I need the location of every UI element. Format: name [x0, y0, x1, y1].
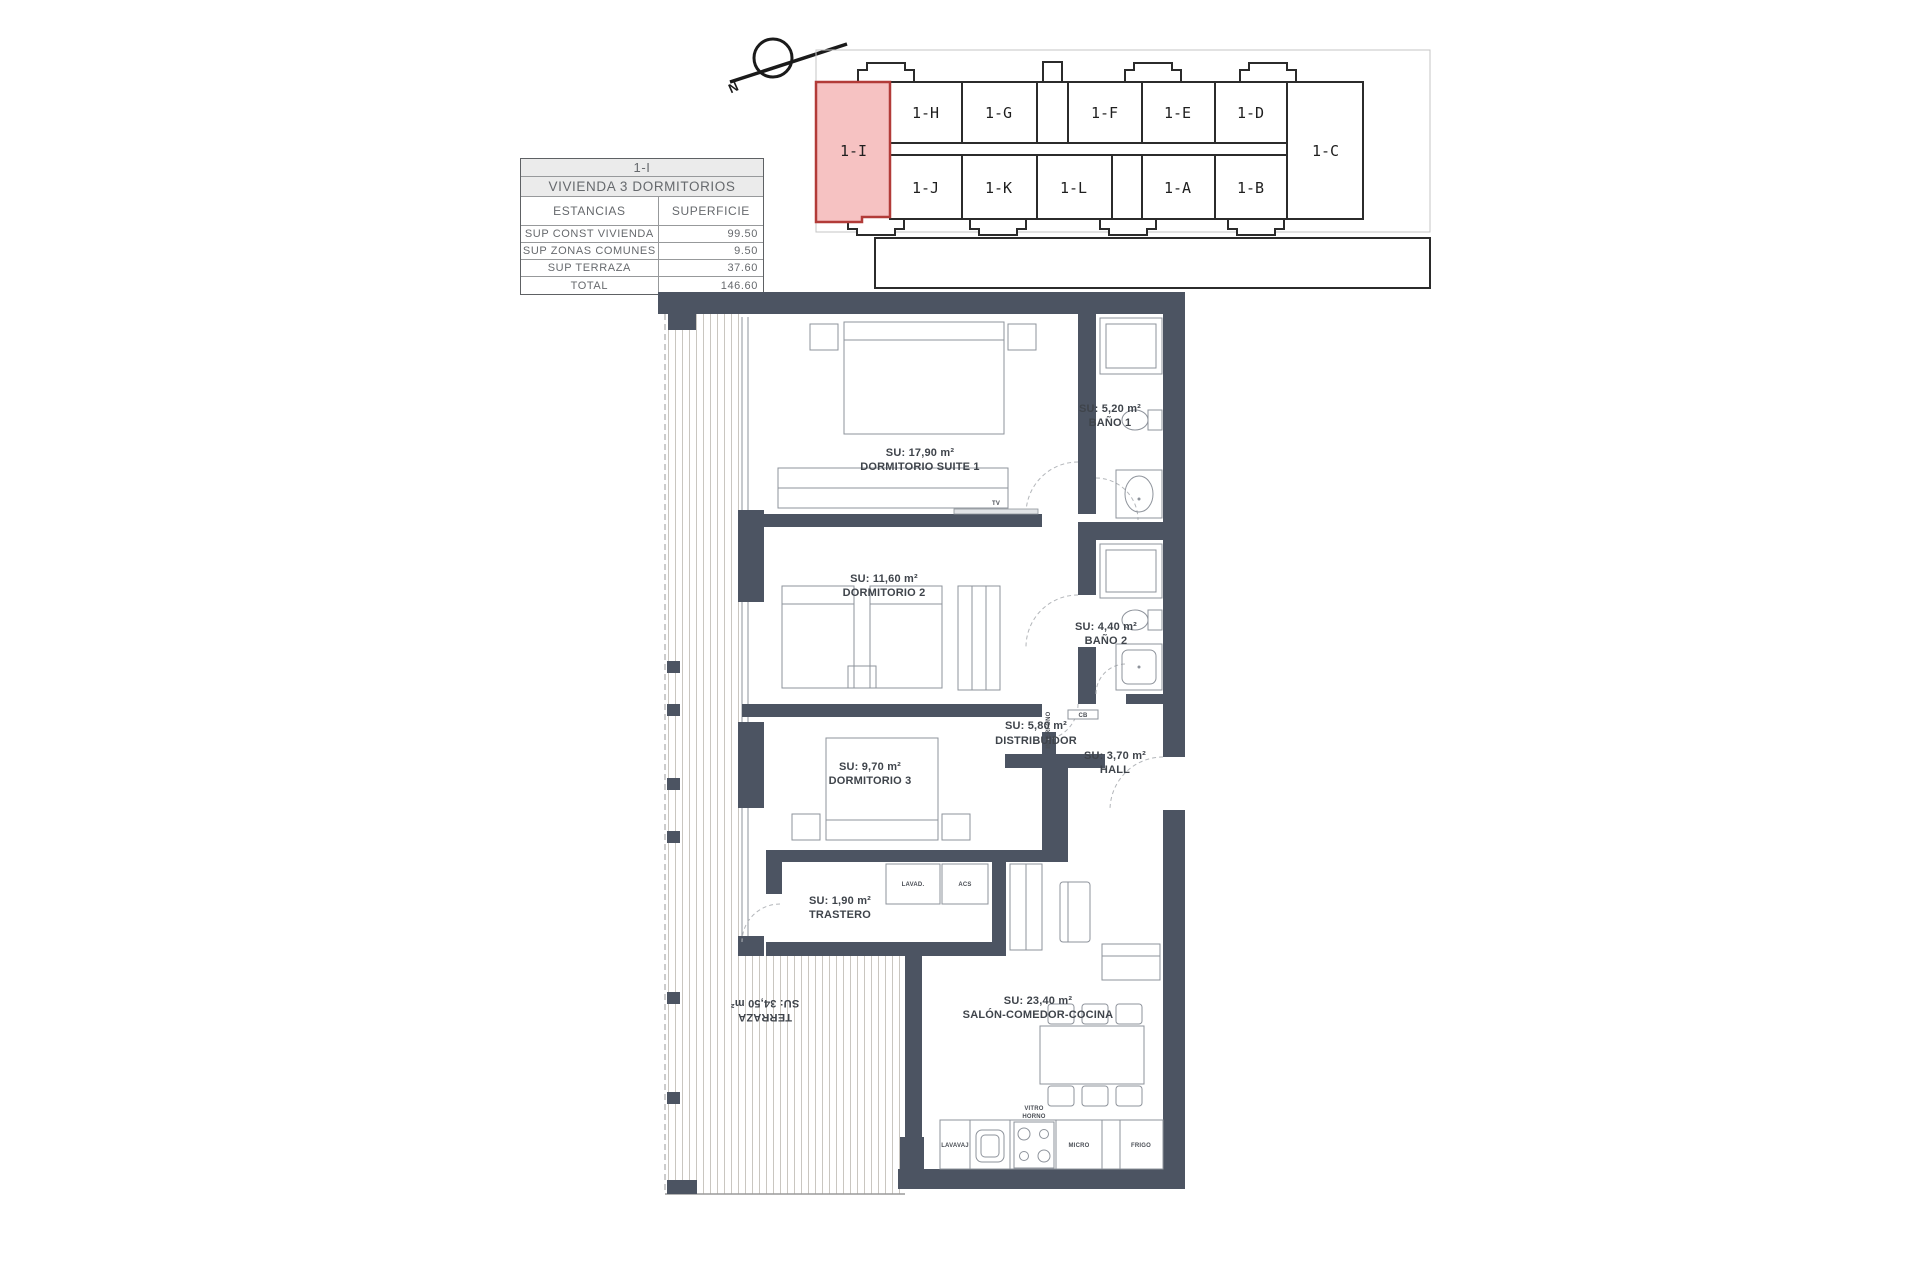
- dining-table: [1040, 1026, 1144, 1084]
- nightstand: [1008, 324, 1036, 350]
- key-plan-unit-label: 1-C: [1312, 142, 1339, 160]
- nightstand: [942, 814, 970, 840]
- chair: [1082, 1086, 1108, 1106]
- key-plan-unit-label: 1-H: [912, 104, 939, 122]
- row-value: 9.50: [658, 243, 763, 259]
- key-plan-unit-label: 1-D: [1237, 104, 1264, 122]
- row-label: SUP TERRAZA: [521, 260, 658, 276]
- bath2-fixtures: [1100, 544, 1162, 690]
- corridor: [890, 143, 1287, 155]
- lavavajillas-label: LAVAVAJ: [941, 1143, 969, 1149]
- table-row: SUP CONST VIVIENDA 99.50: [521, 226, 763, 243]
- key-plan: 1-I 1-H 1-G 1-F 1-E 1-D 1-J 1-K 1-L 1-A …: [800, 20, 1445, 310]
- toilet: [1148, 410, 1162, 430]
- row-label: SUP CONST VIVIENDA: [521, 226, 658, 242]
- balcony-tab: [1100, 219, 1156, 235]
- col-header-superficie: SUPERFICIE: [658, 197, 763, 225]
- cb-label: CB: [1078, 713, 1088, 719]
- dorm2-furniture: [782, 586, 1000, 690]
- nightstand: [792, 814, 820, 840]
- balcony-tab: [1240, 63, 1296, 83]
- room-label-dormitorio-2: DORMITORIO 2: [843, 587, 926, 599]
- balcony-tab: [858, 63, 914, 83]
- room-label-bano-1: BAÑO 1: [1089, 416, 1132, 429]
- row-value: 37.60: [658, 260, 763, 276]
- key-plan-unit-label: 1-G: [985, 104, 1012, 122]
- key-plan-unit-label: 1-F: [1091, 104, 1118, 122]
- wardrobe: [958, 586, 1000, 690]
- key-plan-unit-label: 1-I: [840, 142, 867, 160]
- balcony-tab: [1228, 219, 1284, 235]
- row-label: TOTAL: [521, 277, 658, 294]
- nightstand: [848, 666, 876, 688]
- toilet: [1148, 610, 1162, 630]
- double-bed: [826, 738, 938, 840]
- tv-label: TV: [992, 501, 1000, 507]
- trastero-fixtures: [886, 864, 1042, 950]
- table-row: SUP ZONAS COMUNES 9.50: [521, 243, 763, 260]
- micro-label: MICRO: [1069, 1143, 1090, 1149]
- room-area-bano-1: SU: 5,20 m²: [1079, 403, 1141, 415]
- row-value: 99.50: [658, 226, 763, 242]
- room-area-dormitorio-3: SU: 9,70 m²: [839, 761, 901, 773]
- acs-label: ACS: [958, 882, 971, 888]
- room-area-bano-2: SU: 4,40 m²: [1075, 621, 1137, 633]
- room-label-trastero: TRASTERO: [809, 909, 871, 921]
- room-label-salon: SALÓN-COMEDOR-COCINA: [963, 1008, 1114, 1021]
- sofa: [1060, 882, 1090, 942]
- terraza-deck: [740, 956, 905, 1194]
- floor-plan-sheet: 1-I VIVIENDA 3 DORMITORIOS ESTANCIAS SUP…: [0, 0, 1920, 1280]
- key-plan-unit-label: 1-L: [1060, 179, 1087, 197]
- balcony-tab: [970, 219, 1026, 235]
- key-plan-unit-label: 1-K: [985, 179, 1012, 197]
- dorm3-furniture: [792, 738, 970, 840]
- lavadero-label: LAVAD.: [902, 882, 925, 888]
- double-bed: [844, 322, 1004, 434]
- single-bed: [782, 586, 854, 688]
- chair: [1048, 1086, 1074, 1106]
- chair: [1116, 1086, 1142, 1106]
- key-plan-lower-block: [875, 238, 1430, 288]
- room-area-salon: SU: 23,40 m²: [1004, 995, 1073, 1007]
- table-row: SUP TERRAZA 37.60: [521, 260, 763, 277]
- room-label-hall: HALL: [1100, 764, 1130, 776]
- room-label-dormitorio-suite-1: DORMITORIO SUITE 1: [860, 461, 980, 473]
- horno-label: HORNO: [1022, 1114, 1045, 1120]
- room-area-hall: SU: 3,70 m²: [1084, 750, 1146, 762]
- room-area-distribuidor: SU: 5,80 m²: [1005, 720, 1067, 732]
- key-plan-unit-label: 1-B: [1237, 179, 1264, 197]
- table-header-row: ESTANCIAS SUPERFICIE: [521, 197, 763, 226]
- shower: [1100, 318, 1162, 374]
- key-plan-unit-label: 1-J: [912, 179, 939, 197]
- dwelling-type: VIVIENDA 3 DORMITORIOS: [521, 177, 763, 197]
- suite1-furniture: [778, 322, 1038, 514]
- room-area-terraza: SU: 34,50 m²: [731, 997, 800, 1009]
- stair-notch: [1043, 62, 1062, 84]
- kitchen-cabinet: [1102, 944, 1160, 980]
- shower: [1100, 544, 1162, 598]
- summary-table: 1-I VIVIENDA 3 DORMITORIOS ESTANCIAS SUP…: [520, 158, 764, 295]
- room-area-dormitorio-2: SU: 11,60 m²: [850, 573, 918, 585]
- tv-unit: [954, 509, 1038, 514]
- col-header-estancias: ESTANCIAS: [521, 197, 658, 225]
- room-label-bano-2: BAÑO 2: [1085, 634, 1128, 647]
- north-label: N: [726, 79, 741, 97]
- room-label-dormitorio-3: DORMITORIO 3: [829, 775, 912, 787]
- row-label: SUP ZONAS COMUNES: [521, 243, 658, 259]
- vitro-label: VITRO: [1024, 1106, 1043, 1112]
- frigo-label: FRIGO: [1131, 1143, 1151, 1149]
- chair: [1116, 1004, 1142, 1024]
- salon-furniture: [940, 882, 1163, 1169]
- balcony-tab: [1125, 63, 1181, 83]
- terraza-deck: [666, 314, 740, 1194]
- room-label-distribuidor: DISTRIBUIDOR: [995, 735, 1077, 747]
- stairwell: [1037, 82, 1068, 143]
- room-area-dormitorio-suite-1: SU: 17,90 m²: [886, 447, 955, 459]
- room-label-terraza: TERRAZA: [738, 1011, 792, 1023]
- floor-plan: CB INTERFONO SU: 17,90 m² DORMITORIO SUI…: [658, 292, 1188, 1217]
- stairwell: [1112, 155, 1142, 219]
- unit-code: 1-I: [521, 159, 763, 177]
- kitchen-counter: [940, 1120, 1163, 1169]
- key-plan-unit-label: 1-A: [1164, 179, 1191, 197]
- nightstand: [810, 324, 838, 350]
- single-bed: [870, 586, 942, 688]
- key-plan-unit-label: 1-E: [1164, 104, 1191, 122]
- room-area-trastero: SU: 1,90 m²: [809, 895, 871, 907]
- sink: [1116, 470, 1162, 518]
